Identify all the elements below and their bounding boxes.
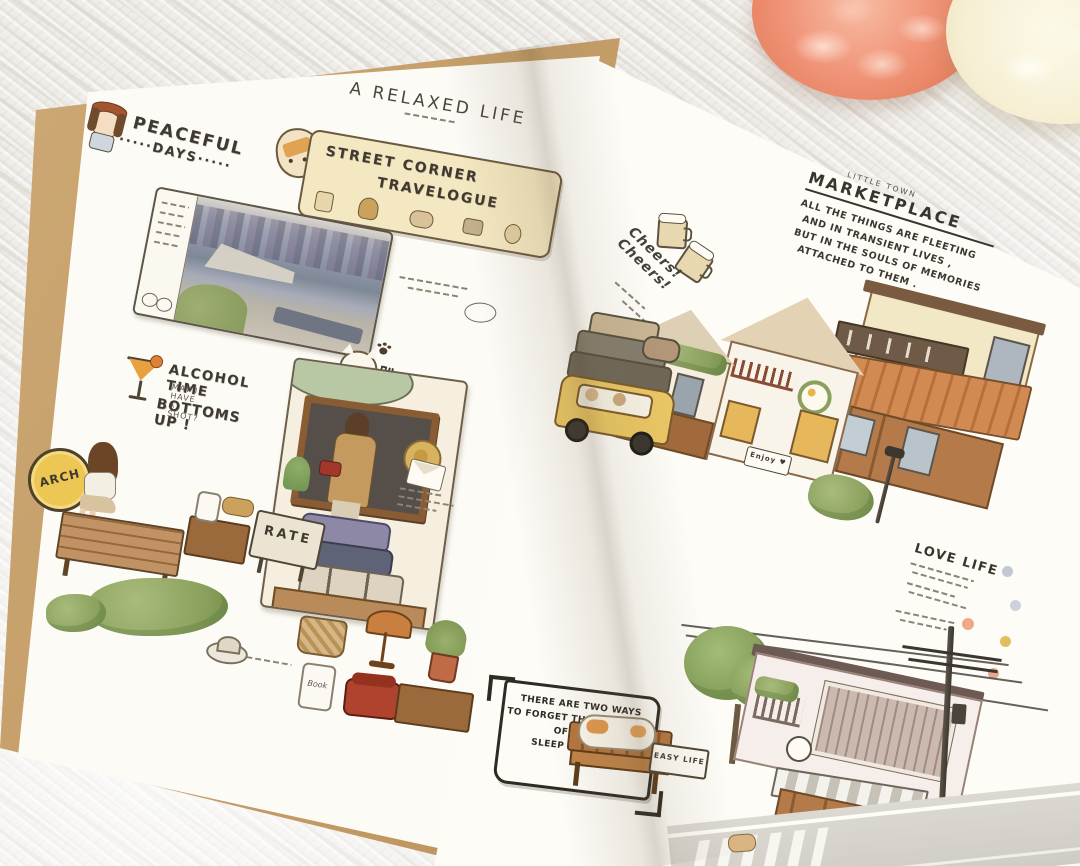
bear-doodle-icon — [357, 196, 381, 221]
badge-doodle-icon — [503, 223, 523, 246]
book-jar-label: Book — [302, 678, 333, 691]
camera-doodle-icon — [462, 217, 484, 236]
red-telephone — [342, 677, 402, 721]
cat-on-road — [727, 833, 756, 853]
mushroom-lamp — [358, 607, 412, 677]
red-bag — [318, 460, 342, 478]
street-corner-scene — [690, 608, 1080, 866]
woven-basket — [296, 615, 349, 659]
jar-doodle-icon — [313, 190, 334, 213]
scene-caption-squiggle — [894, 610, 957, 633]
book-jar: Book — [297, 662, 337, 712]
dog-doodle-icon — [408, 209, 435, 230]
peach-dot — [962, 618, 974, 630]
arch-badge-label: ARCH — [30, 464, 90, 492]
sleeping-cat — [577, 713, 657, 752]
rate-sign-label: RATE — [254, 521, 322, 549]
journal-photo: PEACEFUL ·····DAYS····· A RELAXED LIFE S… — [0, 0, 1080, 866]
transformer-box — [951, 704, 966, 725]
swatch-dot — [1002, 566, 1013, 577]
